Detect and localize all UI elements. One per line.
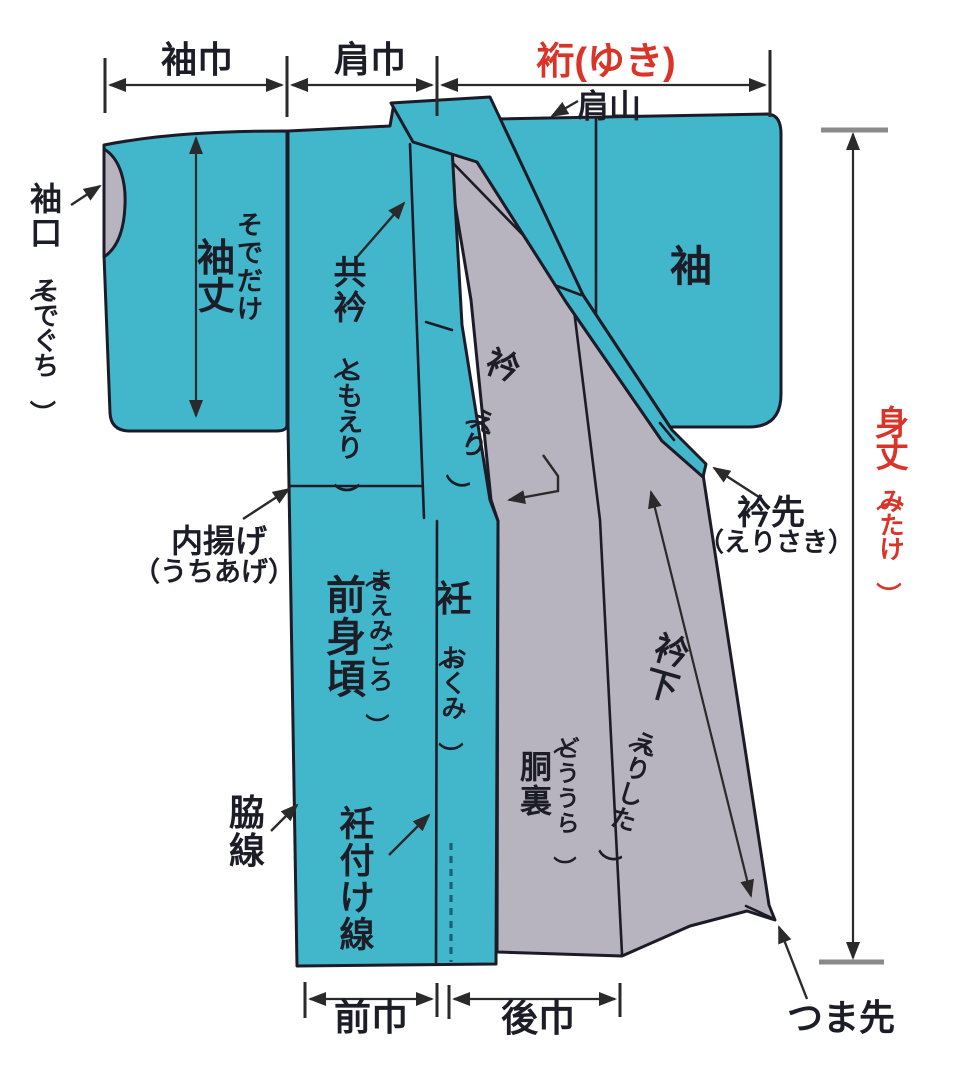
label-douura-ruby: （どううら） [552,731,580,879]
arrow-sodeguchi [71,186,100,205]
label-mitake-sub: （みたけ） [873,486,904,607]
label-sodeguchi-sub: （そでぐち） [27,275,59,426]
arrow-katayama [552,101,578,116]
label-ushiro-haba: 後巾 [501,998,575,1039]
label-wakisen: 脇線 [229,792,265,871]
kimono-diagram-page: 袖巾 肩巾 裄(ゆき) 肩山 袖 内揚げ （うちあげ） 衿先 （えりさき） つま… [0,0,966,1080]
kimono-diagram: 袖巾 肩巾 裄(ゆき) 肩山 袖 内揚げ （うちあげ） 衿先 （えりさき） つま… [0,0,966,1080]
label-sodetake-ruby: そでだけ [237,210,263,324]
label-tsumasaki: つま先 [787,997,895,1038]
label-katayama: 肩山 [577,88,641,124]
label-sodetake-main: 袖丈 [197,238,235,318]
label-sode-haba: 袖巾 [161,39,233,80]
label-uchiage-main: 内揚げ [171,523,267,559]
label-mae-haba: 前巾 [334,997,408,1038]
label-sode-right: 袖 [670,243,712,290]
label-okumi-main: 衽 [436,578,472,619]
label-yuki: 裄(ゆき) [536,41,675,83]
label-okumitsuke-sen: 衽付け線 [339,805,374,955]
label-maemigoro-main: 前身頃 [326,574,366,702]
label-tomoeri-main: 共衿 [334,254,367,326]
label-douura-main: 胴裏 [520,749,553,819]
label-sodeguchi-main: 袖口 [30,181,62,251]
label-uchiage-sub: （うちあげ） [133,557,295,587]
arrow-tsumasaki [779,927,807,999]
arrow-uchiage [243,489,289,519]
label-mitake-main: 身丈 [875,405,909,475]
label-kata-haba: 肩巾 [334,39,406,80]
label-erisaki-sub: （えりさき） [698,527,854,557]
